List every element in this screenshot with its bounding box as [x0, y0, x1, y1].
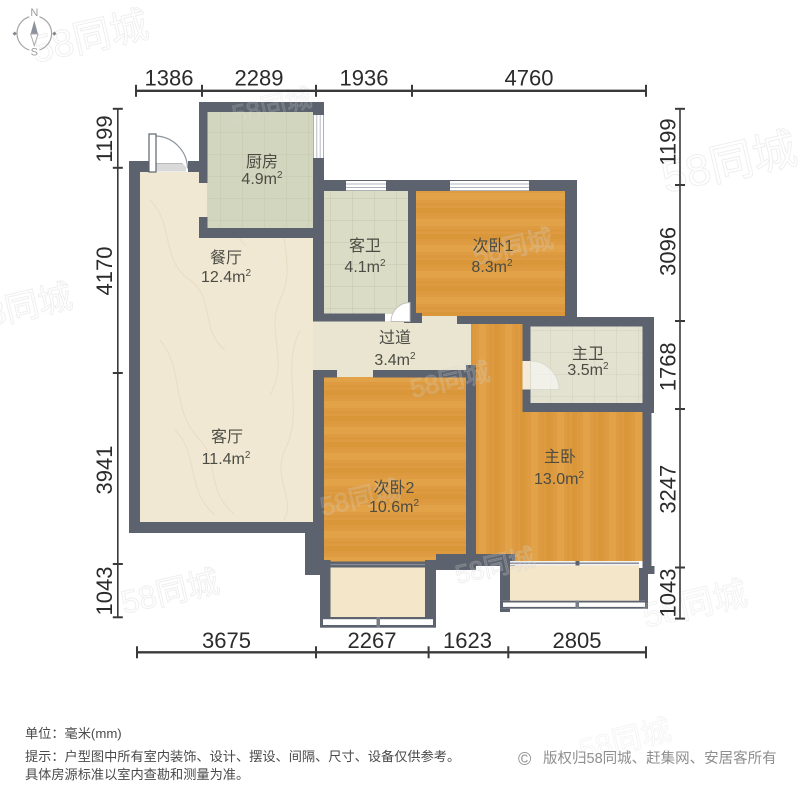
svg-text:N: N — [30, 7, 38, 19]
svg-text:11.4m2: 11.4m2 — [202, 450, 251, 468]
svg-text:1199: 1199 — [92, 115, 117, 162]
svg-text:厨房: 厨房 — [246, 153, 278, 171]
svg-text:3941: 3941 — [92, 446, 117, 495]
svg-text:客卫: 客卫 — [349, 237, 381, 255]
svg-text:3.4m2: 3.4m2 — [374, 351, 416, 369]
svg-text:1043: 1043 — [656, 569, 681, 618]
svg-text:次卧2: 次卧2 — [374, 479, 415, 497]
svg-text:S: S — [31, 47, 38, 59]
svg-text:©: © — [518, 749, 531, 769]
svg-text:2805: 2805 — [553, 628, 602, 653]
svg-text:主卧: 主卧 — [544, 448, 576, 466]
svg-text:1623: 1623 — [443, 628, 492, 653]
svg-text:12.4m2: 12.4m2 — [201, 268, 251, 286]
svg-text:3096: 3096 — [656, 227, 681, 276]
svg-text:3247: 3247 — [656, 465, 681, 514]
svg-text:4760: 4760 — [505, 66, 554, 91]
svg-text:次卧1: 次卧1 — [473, 237, 514, 255]
svg-text:4.1m2: 4.1m2 — [344, 258, 386, 276]
svg-text:1043: 1043 — [92, 567, 117, 616]
svg-text:8.3m2: 8.3m2 — [471, 258, 513, 276]
svg-text:餐厅: 餐厅 — [210, 249, 242, 267]
svg-text:3.5m2: 3.5m2 — [567, 361, 609, 379]
svg-text:3675: 3675 — [202, 628, 251, 653]
svg-text:过道: 过道 — [379, 329, 411, 347]
svg-text:4170: 4170 — [92, 247, 117, 296]
svg-text:具体房源标准以室内查勘和测量为准。: 具体房源标准以室内查勘和测量为准。 — [25, 766, 249, 782]
svg-text:10.6m2: 10.6m2 — [369, 498, 419, 516]
svg-text:2267: 2267 — [348, 628, 397, 653]
svg-text:13.0m2: 13.0m2 — [534, 470, 584, 488]
svg-text:提示：户型图中所有室内装饰、设计、摆设、间隔、尺寸、设备仅供: 提示：户型图中所有室内装饰、设计、摆设、间隔、尺寸、设备仅供参考。 — [25, 748, 460, 764]
svg-text:版权归58同城、赶集网、安居客所有: 版权归58同城、赶集网、安居客所有 — [543, 750, 777, 767]
svg-text:4.9m2: 4.9m2 — [241, 170, 283, 188]
svg-text:1768: 1768 — [656, 342, 681, 391]
svg-text:主卫: 主卫 — [572, 345, 604, 363]
svg-text:单位：毫米(mm): 单位：毫米(mm) — [25, 725, 122, 741]
svg-text:1386: 1386 — [145, 66, 194, 91]
svg-text:1936: 1936 — [340, 66, 389, 91]
svg-text:1199: 1199 — [656, 118, 681, 165]
svg-text:客厅: 客厅 — [211, 428, 243, 446]
svg-text:2289: 2289 — [235, 66, 284, 91]
